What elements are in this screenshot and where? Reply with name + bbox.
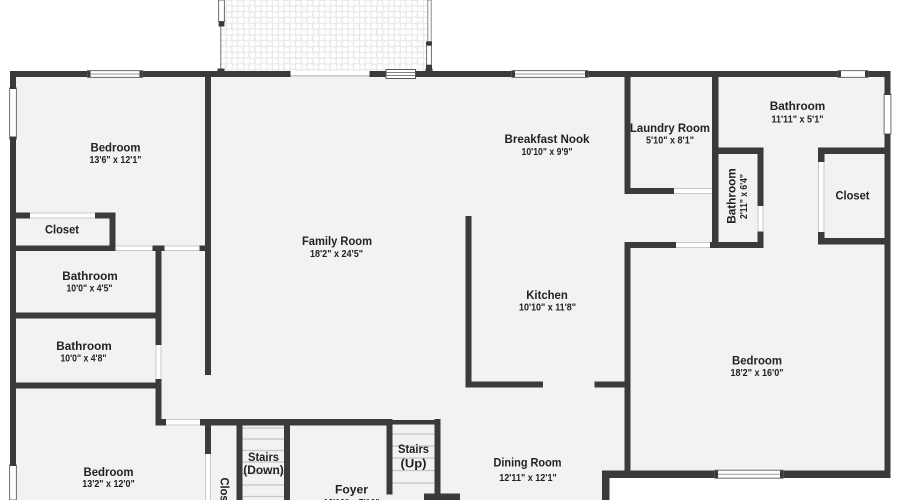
svg-text:(Down): (Down)	[243, 463, 284, 477]
svg-text:Foyer: Foyer	[335, 483, 368, 497]
svg-text:Stairs: Stairs	[248, 450, 279, 464]
svg-text:12'11" x 12'1": 12'11" x 12'1"	[499, 473, 557, 484]
svg-text:11'11" x 5'1": 11'11" x 5'1"	[772, 115, 824, 126]
svg-text:10'0" x 4'5": 10'0" x 4'5"	[67, 284, 113, 295]
svg-text:(Up): (Up)	[401, 457, 427, 471]
svg-text:Closet: Closet	[218, 478, 232, 500]
svg-text:13'6" x 12'1": 13'6" x 12'1"	[90, 155, 142, 166]
svg-text:5'10" x 8'1": 5'10" x 8'1"	[646, 136, 694, 147]
svg-text:Bathroom: Bathroom	[725, 168, 739, 224]
svg-text:18'2" x 16'0": 18'2" x 16'0"	[731, 368, 784, 379]
svg-text:10'10" x 9'9": 10'10" x 9'9"	[522, 147, 573, 158]
svg-text:Bathroom: Bathroom	[56, 339, 112, 353]
svg-text:Bedroom: Bedroom	[91, 141, 141, 155]
svg-text:Family Room: Family Room	[302, 234, 372, 248]
svg-text:Breakfast Nook: Breakfast Nook	[505, 132, 590, 146]
svg-text:Stairs: Stairs	[398, 442, 429, 456]
svg-text:10'0" x 4'8": 10'0" x 4'8"	[61, 354, 107, 365]
svg-text:Bedroom: Bedroom	[732, 354, 782, 368]
svg-text:Bedroom: Bedroom	[84, 465, 134, 479]
svg-text:Closet: Closet	[836, 189, 870, 203]
svg-text:Kitchen: Kitchen	[526, 288, 568, 302]
svg-text:Bathroom: Bathroom	[62, 269, 118, 283]
svg-text:Laundry Room: Laundry Room	[630, 121, 710, 135]
svg-text:10'10" x 11'8": 10'10" x 11'8"	[519, 303, 576, 314]
svg-text:Closet: Closet	[45, 223, 79, 237]
svg-text:18'2" x 24'5": 18'2" x 24'5"	[310, 249, 363, 260]
svg-text:Dining Room: Dining Room	[494, 456, 562, 470]
svg-text:Bathroom: Bathroom	[770, 99, 826, 113]
svg-text:2'11" x 6'4": 2'11" x 6'4"	[739, 174, 750, 219]
svg-text:13'2" x 12'0": 13'2" x 12'0"	[82, 479, 135, 490]
